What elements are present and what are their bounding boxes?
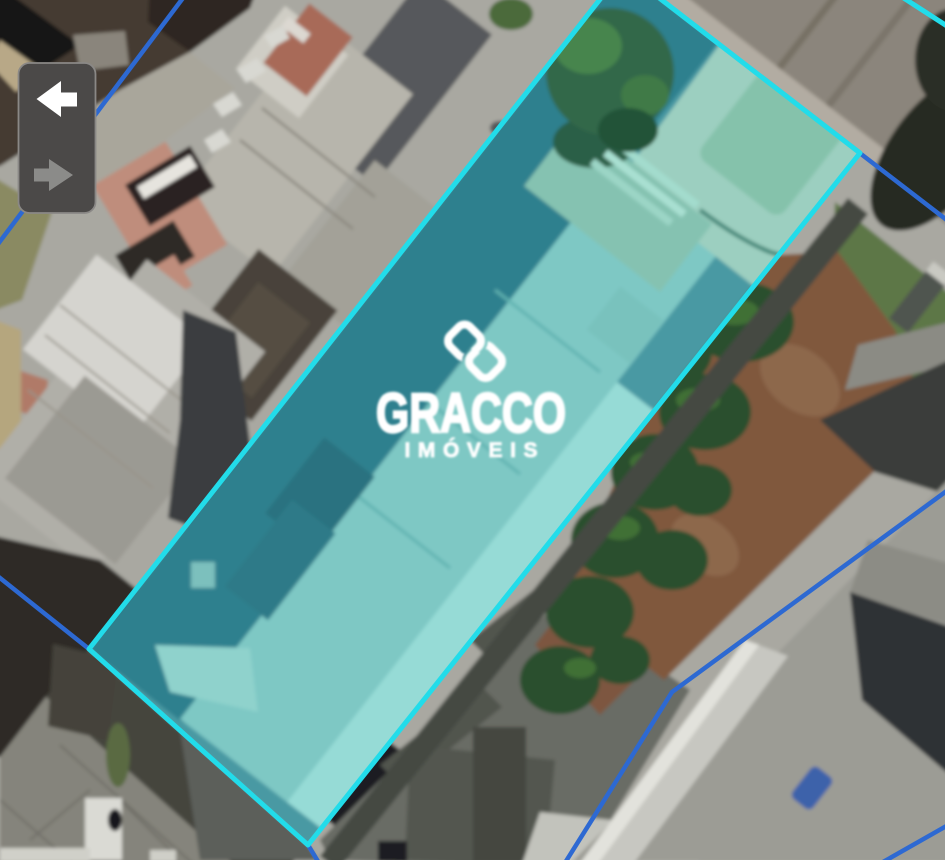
svg-text:GRACCO: GRACCO	[376, 381, 566, 444]
